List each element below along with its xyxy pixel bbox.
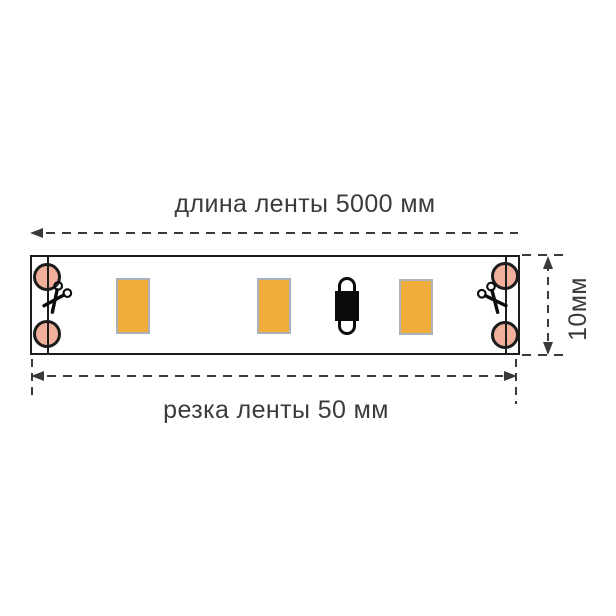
strip-width-label: 10мм — [565, 274, 595, 344]
led-strip — [30, 255, 520, 355]
tape-length-label: длина ленты 5000 мм — [150, 191, 460, 219]
dimension-arrow-down-icon — [543, 342, 553, 355]
cut-length-dimension-line — [47, 375, 503, 377]
width-dimension-line — [547, 263, 549, 348]
led-strip-diagram: длина ленты 5000 мм — [0, 0, 616, 616]
led-strip-surface — [32, 257, 518, 353]
dimension-arrow-up-icon — [543, 256, 553, 269]
led-chip — [116, 278, 150, 334]
dimension-arrow-left-icon — [30, 228, 43, 238]
extension-line — [515, 359, 517, 404]
resistor-component — [335, 291, 359, 321]
tape-length-dimension-line — [46, 232, 518, 234]
cut-length-label: резка ленты 50 мм — [121, 397, 431, 425]
led-chip — [399, 279, 433, 335]
dimension-arrow-right-icon — [504, 371, 517, 381]
dimension-arrow-left-icon — [31, 371, 44, 381]
led-chip — [257, 278, 291, 334]
